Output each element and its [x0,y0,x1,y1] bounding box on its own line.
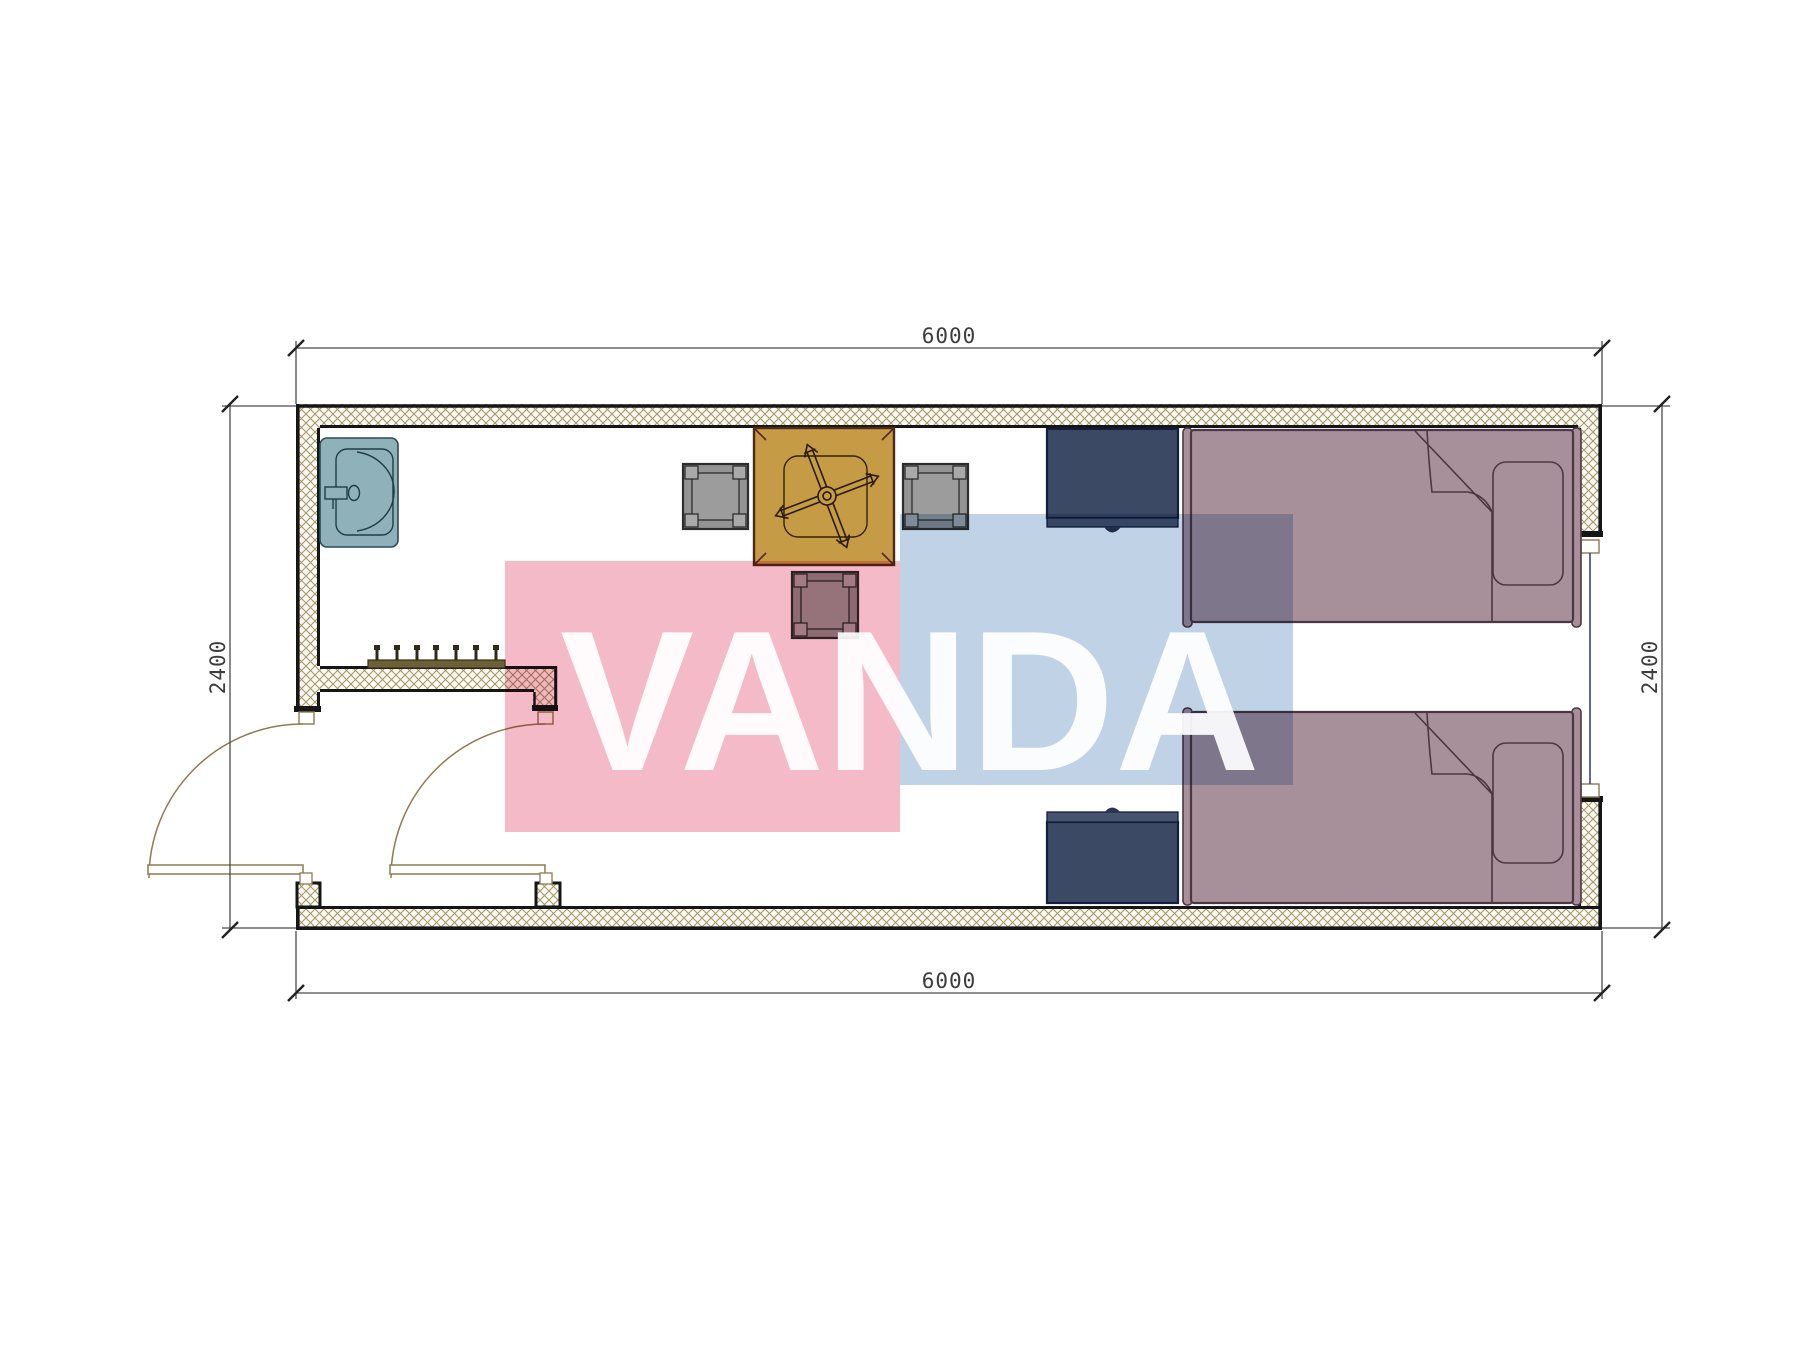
floor-plan-canvas: 6000 6000 2400 2400 VANDA [0,0,1800,1350]
wall-end-cap [294,706,321,712]
door-jamb-bump-inner [536,883,560,907]
door-leaf-left [148,865,303,874]
floor-plan-drawing: 6000 6000 2400 2400 VANDA [0,0,1800,1350]
dim-label-left: 2400 [206,640,230,695]
dim-label-right: 2400 [1638,640,1662,695]
door-leaf-inner [390,865,545,874]
window-jamb-bottom [1581,784,1599,797]
door-jamb-left [299,712,314,724]
door-jamb-bump-left [297,883,320,907]
sink-faucet [325,487,347,499]
bed-top-pillow [1493,462,1563,585]
wall-left [296,428,320,712]
dim-label-bottom: 6000 [922,969,977,993]
bed-bottom-pillow [1493,743,1563,863]
watermark: VANDA [505,514,1293,832]
dim-label-top: 6000 [922,324,977,348]
door-hinge-block-left [300,873,312,884]
dining-table [754,425,898,567]
coat-rack [368,645,505,668]
door-swing-arc-left [149,724,303,878]
coat-rack-hooks [374,645,499,660]
watermark-text: VANDA [560,590,1260,813]
doors [148,712,553,884]
sink-drain [349,486,360,501]
table-top [754,428,894,565]
chair-left [683,464,748,529]
door-hinge-block-inner [540,873,552,884]
sink [320,438,398,547]
window-right [1581,540,1599,797]
window-jamb-top [1581,540,1599,553]
cabinet-bottom [1047,808,1178,904]
coat-rack-bar [368,660,505,668]
